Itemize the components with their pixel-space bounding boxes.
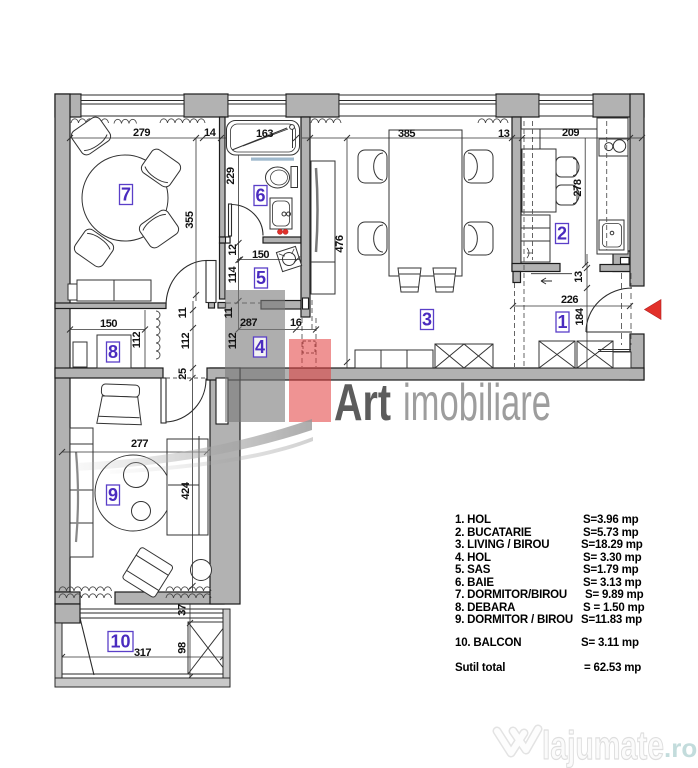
svg-text:25: 25 bbox=[177, 368, 189, 380]
svg-text:.ro: .ro bbox=[664, 733, 697, 763]
svg-text:4: 4 bbox=[255, 337, 265, 357]
svg-text:13: 13 bbox=[498, 128, 510, 140]
svg-text:163: 163 bbox=[256, 128, 273, 140]
svg-text:lajumate: lajumate bbox=[542, 724, 664, 768]
svg-text:209: 209 bbox=[562, 127, 579, 139]
svg-text:2: 2 bbox=[557, 224, 567, 244]
svg-text:114: 114 bbox=[227, 265, 239, 283]
svg-text:6: 6 bbox=[255, 186, 265, 206]
svg-text:Art: Art bbox=[334, 374, 391, 432]
svg-text:98: 98 bbox=[177, 642, 189, 654]
svg-text:355: 355 bbox=[184, 211, 196, 228]
svg-text:279: 279 bbox=[133, 127, 150, 139]
svg-text:imobiliare: imobiliare bbox=[403, 374, 551, 432]
svg-text:278: 278 bbox=[572, 179, 584, 196]
svg-text:3: 3 bbox=[422, 310, 432, 330]
svg-text:7: 7 bbox=[121, 185, 131, 205]
svg-text:16: 16 bbox=[290, 317, 302, 329]
svg-text:385: 385 bbox=[398, 128, 415, 140]
svg-text:112: 112 bbox=[227, 332, 239, 349]
svg-text:226: 226 bbox=[561, 294, 578, 306]
svg-text:184: 184 bbox=[574, 307, 586, 325]
svg-text:9: 9 bbox=[108, 485, 118, 505]
svg-text:5: 5 bbox=[256, 268, 266, 288]
svg-text:317: 317 bbox=[134, 647, 151, 659]
svg-text:10: 10 bbox=[110, 632, 130, 652]
svg-text:112: 112 bbox=[180, 332, 192, 349]
svg-text:277: 277 bbox=[131, 438, 148, 450]
svg-text:8: 8 bbox=[108, 342, 118, 362]
svg-text:424: 424 bbox=[180, 481, 192, 499]
svg-text:150: 150 bbox=[100, 318, 117, 330]
svg-text:229: 229 bbox=[225, 167, 237, 184]
svg-text:12: 12 bbox=[227, 244, 239, 256]
svg-text:476: 476 bbox=[334, 235, 346, 252]
svg-text:1: 1 bbox=[557, 312, 567, 332]
svg-text:11: 11 bbox=[223, 307, 235, 318]
svg-text:287: 287 bbox=[240, 317, 257, 329]
svg-text:37: 37 bbox=[177, 604, 189, 616]
svg-text:112: 112 bbox=[131, 331, 143, 348]
svg-text:13: 13 bbox=[573, 271, 585, 283]
svg-text:14: 14 bbox=[204, 127, 217, 139]
svg-text:11: 11 bbox=[177, 307, 189, 318]
svg-text:150: 150 bbox=[252, 249, 269, 261]
